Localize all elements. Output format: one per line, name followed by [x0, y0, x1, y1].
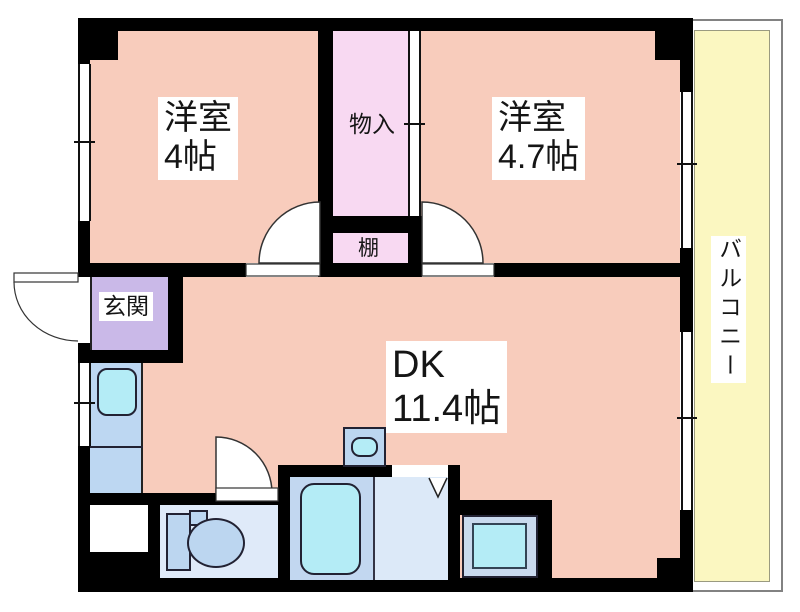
door-leaf-room-small [246, 264, 320, 276]
door-leaf-room-large [422, 264, 494, 276]
balcony-label: バルコニー [711, 236, 746, 383]
shelf-label-text: 棚 [358, 237, 379, 260]
bathtub [300, 483, 361, 575]
room-small-size: 4帖 [164, 138, 232, 177]
bathroom-door-opening [392, 465, 448, 477]
washroom-floor [373, 477, 448, 580]
window-left-upper [78, 64, 91, 221]
kitchen-counter-divider [90, 446, 143, 448]
closet-label: 物入 [345, 110, 399, 139]
window-right-dk [681, 332, 693, 510]
wall-entrance-bottom [90, 350, 183, 363]
room-small-name: 洋室 [164, 99, 232, 138]
floor-plan: 洋室 4帖 洋室 4.7帖 DK 11.4帖 物入 棚 玄関 バルコニー [0, 0, 800, 612]
room-small-label: 洋室 4帖 [158, 97, 238, 180]
dk-size: 11.4帖 [392, 387, 501, 431]
room-large-size: 4.7帖 [498, 138, 579, 177]
wall-entrance-right [168, 263, 183, 363]
wall-left-a [78, 18, 90, 64]
closet-label-text: 物入 [349, 111, 395, 137]
wall-right-mid [680, 248, 693, 332]
meter-box [90, 505, 148, 552]
room-large-label: 洋室 4.7帖 [492, 97, 585, 180]
dk-label: DK 11.4帖 [386, 341, 507, 433]
entrance-label-text: 玄関 [103, 293, 149, 319]
wall-left-d [78, 446, 90, 496]
wall-mid-a [78, 263, 246, 277]
shelf-label: 棚 [355, 237, 382, 261]
window-left-lower [78, 363, 91, 446]
wall-right-top [680, 18, 693, 92]
wall-left-c [78, 343, 90, 363]
wall-top [78, 18, 680, 31]
washbasin-bowl [351, 437, 378, 457]
wall-closet-left [318, 31, 333, 277]
window-right-room [681, 92, 693, 248]
kitchen-sink [97, 368, 137, 416]
wall-step-br [657, 558, 693, 592]
balcony-label-text: バルコニー [716, 237, 742, 382]
room-large-name: 洋室 [498, 99, 579, 138]
toilet-bowl [187, 518, 245, 568]
wall-toilet-top [148, 493, 290, 505]
wall-mid-c [494, 263, 693, 277]
entrance-door-arc [14, 282, 78, 341]
closet-sliding-door [408, 31, 421, 216]
dk-name: DK [392, 343, 501, 387]
wall-mid-b [320, 263, 422, 277]
entrance-label: 玄関 [99, 292, 153, 321]
washing-machine-pan-inner [472, 523, 527, 569]
wall-bottom [78, 578, 658, 592]
entrance-door-leaf [14, 273, 78, 282]
